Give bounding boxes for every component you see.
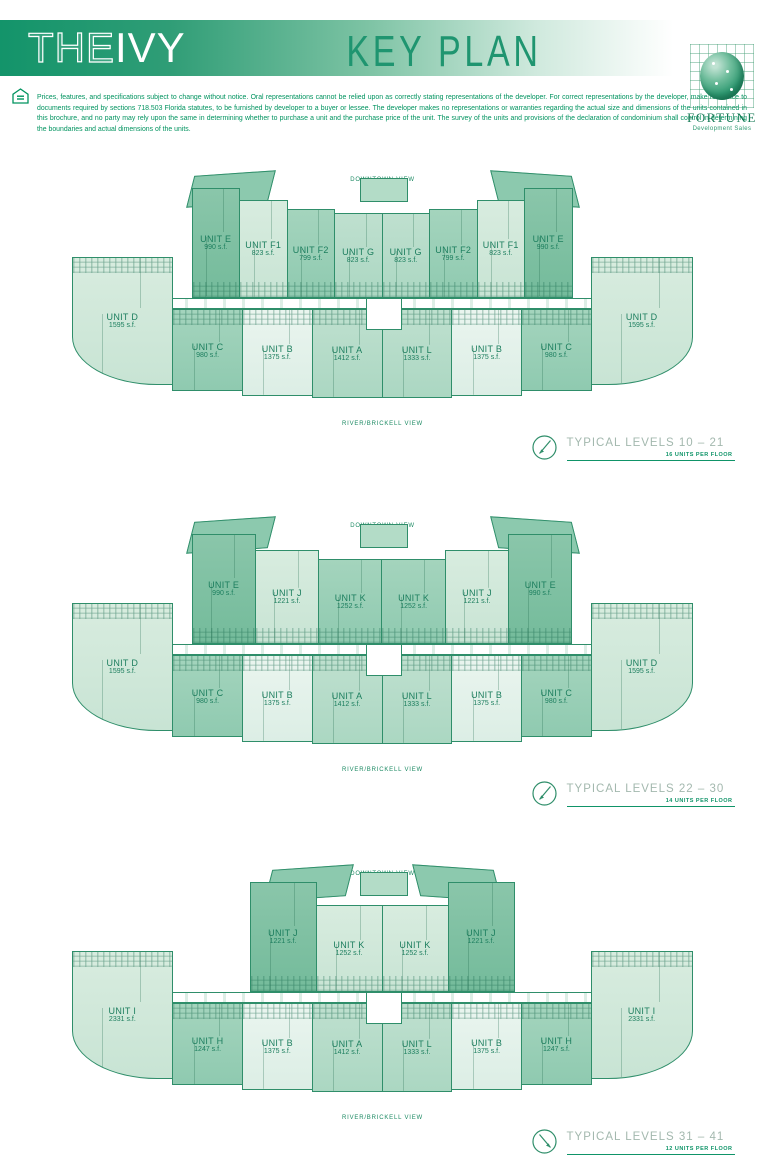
unit-cell: UNIT G823 s.f.: [334, 213, 383, 298]
unit-cell: UNIT F2799 s.f.: [429, 209, 478, 298]
unit-label: UNIT B: [471, 690, 502, 700]
unit-area: 1252 s.f.: [337, 603, 364, 610]
floorplan-levels-22-30: DOWNTOWN VIEW UNIT E990 s.f.UNIT J1221 s…: [73, 523, 693, 773]
page-title: KEY PLAN: [346, 27, 541, 77]
unit-label: UNIT B: [262, 690, 293, 700]
unit-label: UNIT J: [466, 928, 496, 938]
unit-label: UNIT B: [262, 344, 293, 354]
unit-label: UNIT C: [541, 342, 573, 352]
unit-label: UNIT F1: [245, 240, 281, 250]
unit-area: 990 s.f.: [212, 590, 235, 597]
unit-cell: UNIT E990 s.f.: [524, 188, 573, 298]
unit-area: 1595 s.f.: [628, 668, 655, 675]
unit-area: 990 s.f.: [529, 590, 552, 597]
equal-housing-icon: [12, 88, 29, 104]
unit-label: UNIT K: [398, 593, 429, 603]
unit-cell: UNIT J1221 s.f.: [250, 882, 317, 992]
plan-caption: TYPICAL LEVELS 10 – 21 16 UNITS PER FLOO…: [531, 434, 735, 461]
unit-cell: UNIT E990 s.f.: [192, 534, 256, 644]
unit-cell: UNIT B1375 s.f.: [451, 1003, 522, 1090]
unit-area: 823 s.f.: [252, 250, 275, 257]
plan-caption: TYPICAL LEVELS 22 – 30 14 UNITS PER FLOO…: [531, 780, 735, 807]
unit-area: 1333 s.f.: [403, 355, 430, 362]
river-brickell-view-label: RIVER/BRICKELL VIEW: [73, 767, 693, 773]
compass-icon: [531, 434, 558, 461]
unit-area: 1252 s.f.: [400, 603, 427, 610]
unit-label: UNIT L: [402, 345, 432, 355]
unit-area: 1221 s.f.: [274, 598, 301, 605]
unit-area: 990 s.f.: [204, 244, 227, 251]
unit-cell: UNIT J1221 s.f.: [448, 882, 515, 992]
floorplan-levels-31-41: DOWNTOWN VIEW UNIT J1221 s.f.UNIT K1252 …: [73, 871, 693, 1121]
unit-cell: UNIT F1823 s.f.: [477, 200, 526, 297]
unit-label: UNIT K: [399, 940, 430, 950]
unit-label: UNIT A: [332, 691, 363, 701]
unit-area: 980 s.f.: [196, 352, 219, 359]
unit-label: UNIT J: [272, 588, 302, 598]
unit-area: 1412 s.f.: [334, 355, 361, 362]
unit-area: 1595 s.f.: [109, 322, 136, 329]
unit-cell: UNIT E990 s.f.: [508, 534, 572, 644]
top-unit-row: UNIT J1221 s.f.UNIT K1252 s.f.UNIT K1252…: [251, 880, 515, 992]
unit-area: 980 s.f.: [545, 352, 568, 359]
unit-area: 990 s.f.: [537, 244, 560, 251]
elevator-core: [366, 992, 402, 1024]
unit-cell: UNIT B1375 s.f.: [242, 309, 313, 396]
unit-area: 823 s.f.: [394, 257, 417, 264]
unit-label: UNIT C: [192, 342, 224, 352]
unit-label: UNIT C: [541, 688, 573, 698]
unit-cell: UNIT I2331 s.f.: [72, 951, 174, 1079]
plan-caption-title: TYPICAL LEVELS 31 – 41: [567, 1131, 735, 1143]
unit-area: 1247 s.f.: [194, 1046, 221, 1053]
unit-cell: UNIT I2331 s.f.: [591, 951, 693, 1079]
unit-label: UNIT H: [192, 1036, 224, 1046]
unit-area: 1412 s.f.: [334, 1049, 361, 1056]
unit-cell: UNIT C980 s.f.: [521, 309, 592, 392]
unit-area: 1412 s.f.: [334, 701, 361, 708]
unit-area: 980 s.f.: [196, 698, 219, 705]
caption-rule: [567, 1154, 735, 1155]
disclaimer-text: Prices, features, and specifications sub…: [37, 93, 747, 136]
unit-label: UNIT G: [342, 247, 374, 257]
river-brickell-view-label: RIVER/BRICKELL VIEW: [73, 1115, 693, 1121]
unit-cell: UNIT H1247 s.f.: [521, 1003, 592, 1086]
unit-label: UNIT E: [525, 580, 556, 590]
logo-subtitle: Development Sales: [687, 126, 757, 132]
unit-label: UNIT G: [390, 247, 422, 257]
unit-cell: UNIT G823 s.f.: [382, 213, 431, 298]
globe-icon: [700, 52, 744, 100]
unit-area: 2331 s.f.: [628, 1016, 655, 1023]
unit-area: 980 s.f.: [545, 698, 568, 705]
unit-label: UNIT D: [626, 658, 658, 668]
top-unit-row: UNIT E990 s.f.UNIT J1221 s.f.UNIT K1252 …: [193, 532, 573, 644]
caption-rule: [567, 460, 735, 461]
unit-cell: UNIT F1823 s.f.: [239, 200, 288, 297]
elevator-core: [366, 298, 402, 330]
unit-label: UNIT E: [208, 580, 239, 590]
unit-label: UNIT E: [200, 234, 231, 244]
unit-label: UNIT I: [109, 1006, 137, 1016]
unit-label: UNIT L: [402, 1039, 432, 1049]
unit-cell: UNIT D1595 s.f.: [72, 257, 174, 385]
unit-cell: UNIT B1375 s.f.: [242, 655, 313, 742]
unit-cell: UNIT K1252 s.f.: [382, 905, 449, 992]
unit-label: UNIT A: [332, 1039, 363, 1049]
unit-label: UNIT B: [262, 1038, 293, 1048]
units-per-floor-label: 12 UNITS PER FLOOR: [567, 1146, 733, 1152]
unit-area: 2331 s.f.: [109, 1016, 136, 1023]
unit-cell: UNIT B1375 s.f.: [242, 1003, 313, 1090]
plan-caption: TYPICAL LEVELS 31 – 41 12 UNITS PER FLOO…: [531, 1128, 735, 1155]
unit-area: 1252 s.f.: [402, 950, 429, 957]
globe-grid-icon: [690, 44, 754, 108]
unit-area: 1221 s.f.: [270, 938, 297, 945]
river-brickell-view-label: RIVER/BRICKELL VIEW: [73, 421, 693, 427]
unit-label: UNIT E: [533, 234, 564, 244]
plan-caption-title: TYPICAL LEVELS 22 – 30: [567, 783, 735, 795]
unit-area: 1595 s.f.: [109, 668, 136, 675]
unit-label: UNIT B: [471, 1038, 502, 1048]
unit-cell: UNIT J1221 s.f.: [445, 550, 509, 643]
unit-area: 1252 s.f.: [336, 950, 363, 957]
floorplan-levels-10-21: DOWNTOWN VIEW UNIT E990 s.f.UNIT F1823 s…: [73, 177, 693, 427]
units-per-floor-label: 16 UNITS PER FLOOR: [567, 452, 733, 458]
unit-area: 1375 s.f.: [264, 1048, 291, 1055]
unit-cell: UNIT E990 s.f.: [192, 188, 241, 298]
fortune-logo: FORTUNE Development Sales: [687, 44, 757, 132]
unit-area: 1375 s.f.: [473, 700, 500, 707]
unit-label: UNIT F1: [483, 240, 519, 250]
unit-cell: UNIT C980 s.f.: [172, 655, 243, 738]
unit-area: 1375 s.f.: [264, 354, 291, 361]
unit-cell: UNIT K1252 s.f.: [381, 559, 445, 644]
unit-cell: UNIT K1252 s.f.: [318, 559, 382, 644]
unit-cell: UNIT F2799 s.f.: [287, 209, 336, 298]
unit-area: 1221 s.f.: [464, 598, 491, 605]
unit-cell: UNIT D1595 s.f.: [591, 603, 693, 731]
unit-label: UNIT D: [107, 658, 139, 668]
unit-label: UNIT J: [268, 928, 298, 938]
unit-area: 1375 s.f.: [264, 700, 291, 707]
compass-icon: [531, 780, 558, 807]
unit-cell: UNIT C980 s.f.: [521, 655, 592, 738]
elevator-core: [366, 644, 402, 676]
unit-label: UNIT C: [192, 688, 224, 698]
unit-area: 1375 s.f.: [473, 354, 500, 361]
unit-area: 1247 s.f.: [543, 1046, 570, 1053]
unit-cell: UNIT B1375 s.f.: [451, 655, 522, 742]
unit-area: 1333 s.f.: [403, 701, 430, 708]
unit-area: 1595 s.f.: [628, 322, 655, 329]
unit-label: UNIT A: [332, 345, 363, 355]
unit-area: 1333 s.f.: [403, 1049, 430, 1056]
unit-area: 1375 s.f.: [473, 1048, 500, 1055]
unit-label: UNIT F2: [435, 245, 471, 255]
unit-label: UNIT J: [462, 588, 492, 598]
unit-area: 799 s.f.: [442, 255, 465, 262]
unit-label: UNIT B: [471, 344, 502, 354]
unit-area: 823 s.f.: [347, 257, 370, 264]
unit-cell: UNIT B1375 s.f.: [451, 309, 522, 396]
unit-area: 1221 s.f.: [468, 938, 495, 945]
unit-label: UNIT K: [335, 593, 366, 603]
caption-rule: [567, 806, 735, 807]
brand-ivy: IVY: [115, 24, 186, 71]
units-per-floor-label: 14 UNITS PER FLOOR: [567, 798, 733, 804]
unit-cell: UNIT J1221 s.f.: [255, 550, 319, 643]
unit-label: UNIT K: [333, 940, 364, 950]
header-banner: THEIVY KEY PLAN: [0, 20, 765, 76]
unit-label: UNIT I: [628, 1006, 656, 1016]
unit-label: UNIT L: [402, 691, 432, 701]
building-footprint: UNIT J1221 s.f.UNIT K1252 s.f.UNIT K1252…: [73, 880, 693, 1099]
compass-icon: [531, 1128, 558, 1155]
unit-label: UNIT F2: [293, 245, 329, 255]
disclaimer-row: Prices, features, and specifications sub…: [12, 86, 747, 143]
unit-label: UNIT D: [107, 312, 139, 322]
unit-label: UNIT D: [626, 312, 658, 322]
brand-the: THE: [28, 24, 115, 71]
plan-caption-title: TYPICAL LEVELS 10 – 21: [567, 437, 735, 449]
brand-logo: THEIVY: [28, 24, 186, 72]
unit-cell: UNIT H1247 s.f.: [172, 1003, 243, 1086]
unit-cell: UNIT K1252 s.f.: [316, 905, 383, 992]
unit-area: 823 s.f.: [489, 250, 512, 257]
unit-cell: UNIT C980 s.f.: [172, 309, 243, 392]
unit-label: UNIT H: [541, 1036, 573, 1046]
building-footprint: UNIT E990 s.f.UNIT J1221 s.f.UNIT K1252 …: [73, 532, 693, 751]
building-footprint: UNIT E990 s.f.UNIT F1823 s.f.UNIT F2799 …: [73, 186, 693, 405]
unit-cell: UNIT D1595 s.f.: [591, 257, 693, 385]
unit-area: 799 s.f.: [299, 255, 322, 262]
top-unit-row: UNIT E990 s.f.UNIT F1823 s.f.UNIT F2799 …: [193, 186, 573, 298]
unit-cell: UNIT D1595 s.f.: [72, 603, 174, 731]
logo-name: FORTUNE: [687, 110, 757, 126]
